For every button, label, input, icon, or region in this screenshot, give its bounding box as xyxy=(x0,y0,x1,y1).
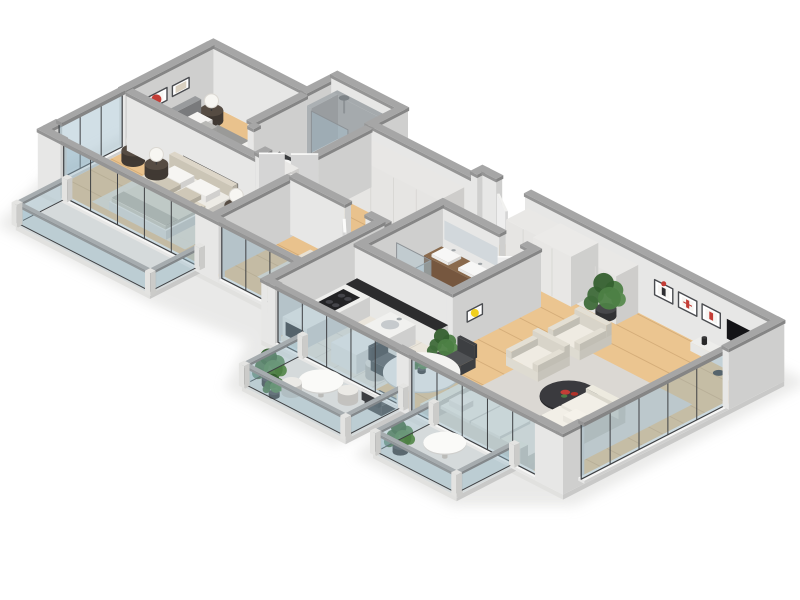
floorplan-3d-render: Isometric 3D floor plan render of a two-… xyxy=(0,0,800,600)
floorplan-scene-canvas xyxy=(0,0,800,600)
